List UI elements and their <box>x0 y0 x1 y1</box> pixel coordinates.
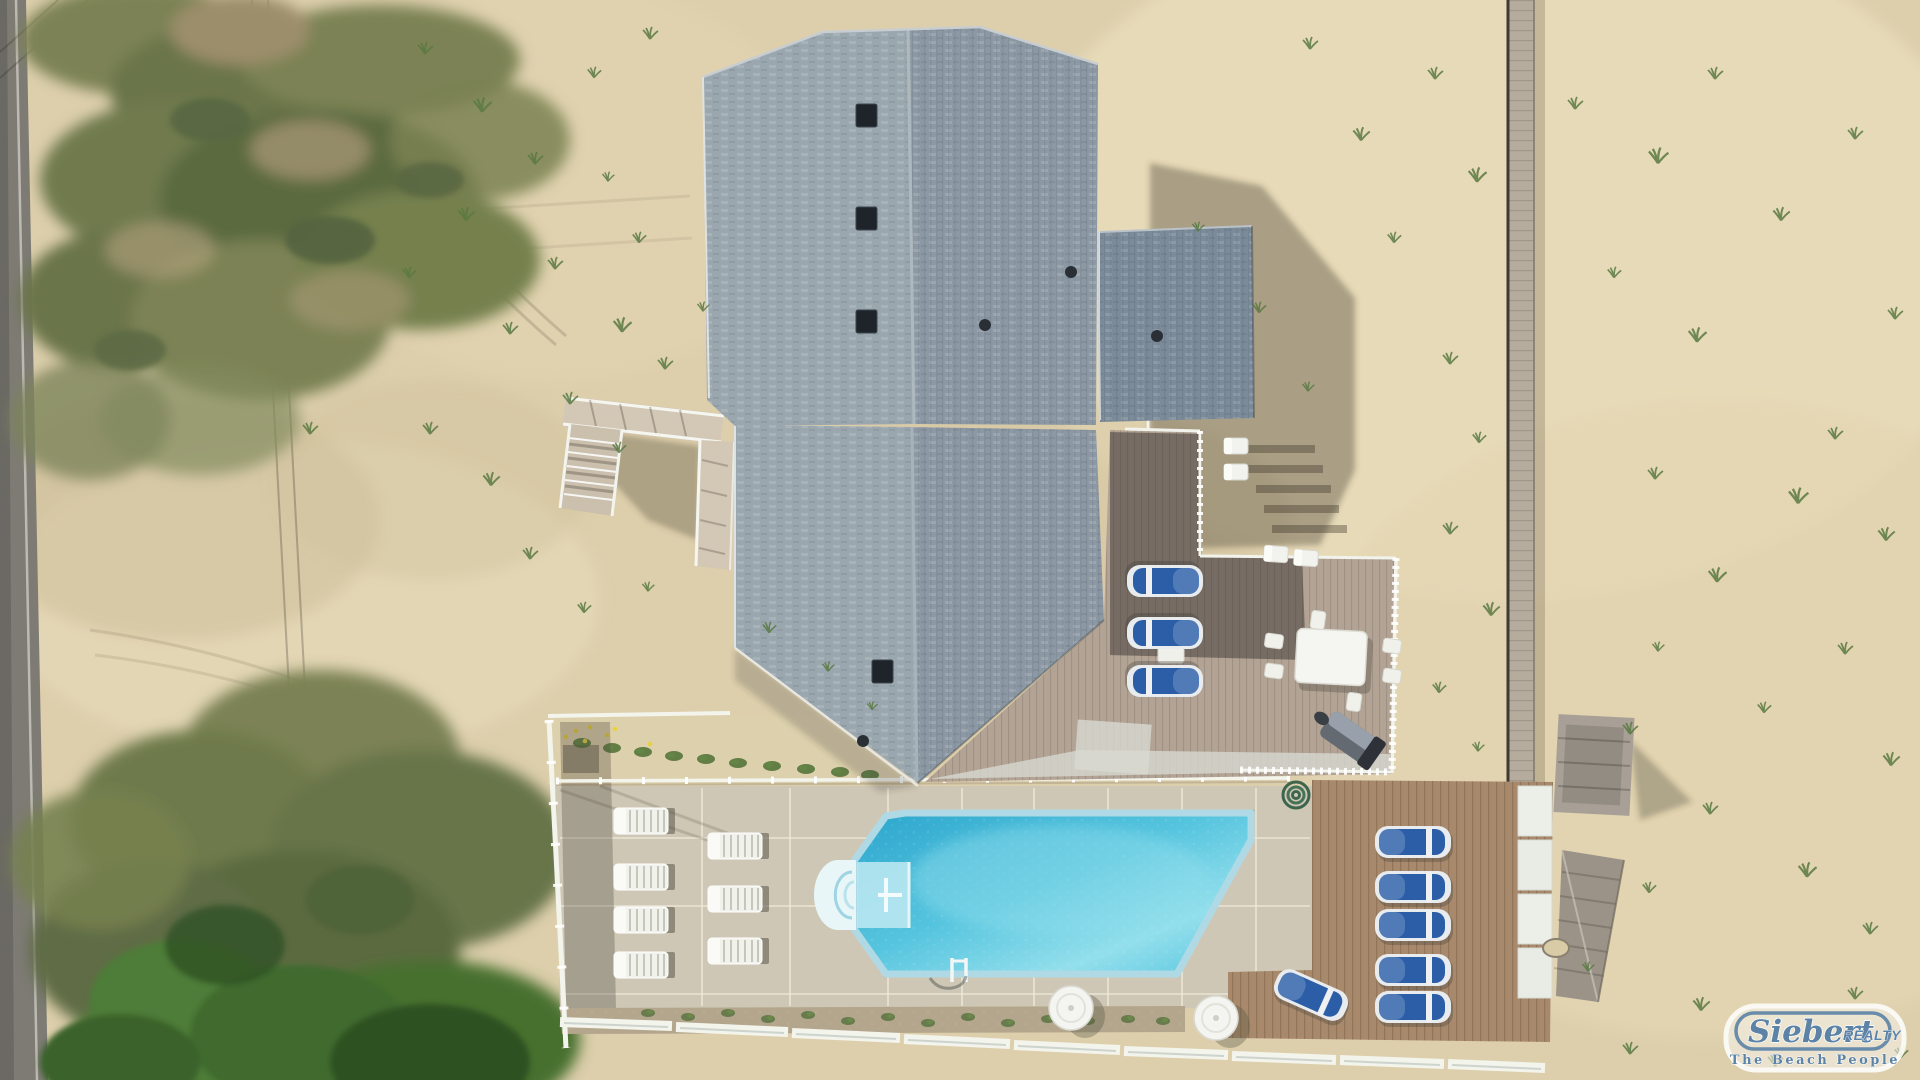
flower-plant <box>634 747 652 757</box>
flower-plant <box>797 764 815 774</box>
blue-lounge-chair <box>1375 826 1453 862</box>
flower-plant <box>665 751 683 761</box>
blue-lounge-chair <box>1375 909 1453 945</box>
fence-cast-shadow <box>560 722 616 1010</box>
pool <box>814 813 1251 988</box>
dining-chair <box>1310 610 1326 630</box>
deck-chair <box>1224 438 1248 454</box>
dining-chair <box>1382 668 1402 684</box>
roof-pipe-vent <box>979 319 991 331</box>
blue-lounge-chair <box>1125 661 1203 697</box>
blue-lounge-chair <box>1125 613 1203 649</box>
blue-lounge-chair <box>1375 991 1453 1027</box>
white-lounge-chair <box>614 952 675 978</box>
dining-chair <box>1264 663 1284 679</box>
aerial-photo: Aerial drone photo of an oceanfront beac… <box>0 0 1920 1080</box>
dining-set <box>1295 628 1374 694</box>
logo-realty-text: REALTY <box>1843 1027 1902 1043</box>
boardwalk <box>1508 0 1545 782</box>
blue-lounge-chair <box>1375 871 1453 907</box>
deck-chair <box>1224 464 1248 480</box>
flower-plant <box>729 758 747 768</box>
gravel-plant <box>961 1013 975 1021</box>
flower-plant <box>831 767 849 777</box>
white-lounge-chair <box>708 833 769 859</box>
roof-pipe-vent <box>857 735 869 747</box>
life-ring-sign <box>1543 939 1569 957</box>
aerial-photo-stage: Aerial drone photo of an oceanfront beac… <box>0 0 1920 1080</box>
gravel-plant <box>681 1013 695 1021</box>
flower-plant <box>763 761 781 771</box>
blue-lounge-chair <box>1375 954 1453 990</box>
roof-pipe-vent <box>1151 330 1163 342</box>
blue-lounge-chair <box>1125 561 1203 597</box>
gravel-plant <box>841 1017 855 1025</box>
gravel-plant <box>721 1009 735 1017</box>
dining-table <box>1295 628 1368 686</box>
logo-tagline-text: The Beach People <box>1730 1053 1900 1068</box>
gravel-plant <box>761 1015 775 1023</box>
entry-stairs <box>560 424 622 516</box>
dining-chair <box>1346 692 1362 712</box>
logo-badge: Siebert REALTY The Beach People <box>1726 1006 1904 1070</box>
yellow-flower <box>613 727 618 732</box>
gravel-plant <box>881 1013 895 1021</box>
dormer-roof <box>1098 226 1254 422</box>
deck-chair <box>1263 545 1288 563</box>
roof-vent <box>856 104 877 127</box>
white-lounge-chair <box>708 886 769 912</box>
white-lounge-chair <box>614 907 675 933</box>
gravel-plant <box>641 1009 655 1017</box>
white-lounge-chair <box>614 864 675 890</box>
dining-chair <box>1264 633 1284 649</box>
main-roof <box>703 27 1098 426</box>
dining-chair <box>1382 638 1402 654</box>
yellow-flower <box>648 742 653 747</box>
deck-chair <box>1293 549 1318 567</box>
gravel-plant <box>801 1011 815 1019</box>
gravel-plant <box>1156 1017 1170 1025</box>
gravel-plant <box>1121 1015 1135 1023</box>
gravel-plant <box>1001 1019 1015 1027</box>
pool-steps <box>814 860 909 930</box>
gravel-plant <box>921 1019 935 1027</box>
roof-pipe-vent <box>1065 266 1077 278</box>
roof-vent <box>856 207 877 230</box>
side-table <box>1158 647 1184 663</box>
roof-vent <box>872 660 893 683</box>
roof-vent <box>856 310 877 333</box>
flower-plant <box>697 754 715 764</box>
white-lounge-chair <box>614 808 675 834</box>
white-lounge-chair <box>708 938 769 964</box>
